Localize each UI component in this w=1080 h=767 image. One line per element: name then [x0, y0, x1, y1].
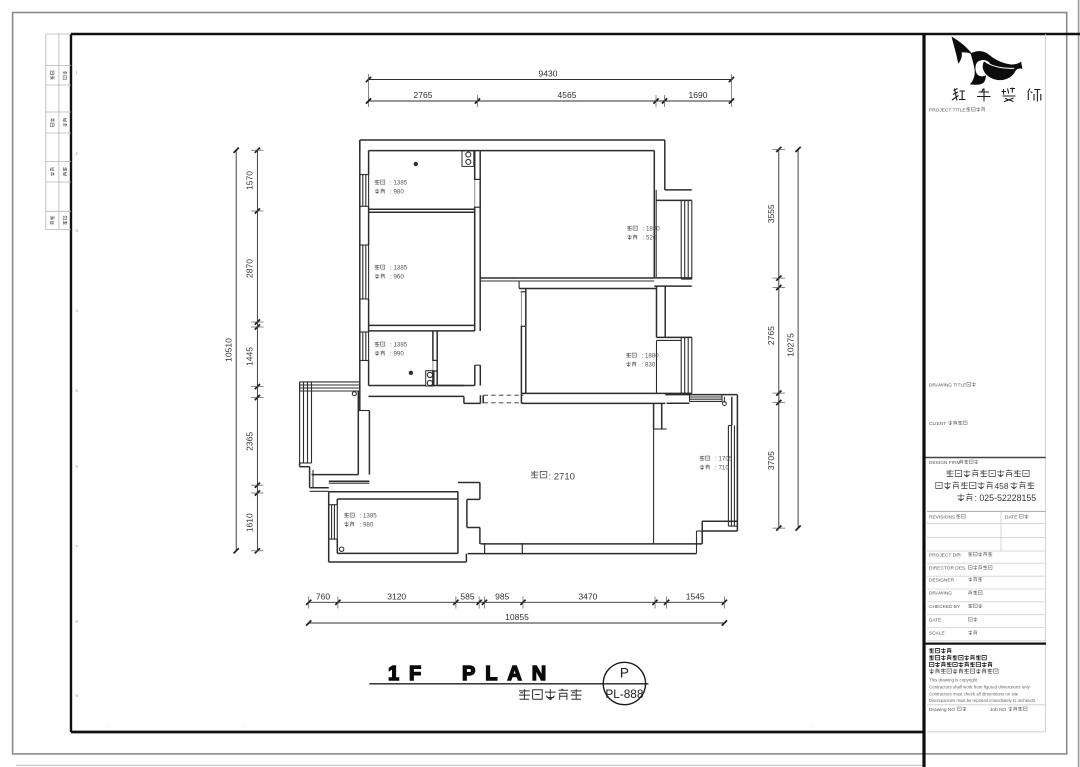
svg-text:: 1385: : 1385	[360, 512, 378, 519]
svg-text:·: ·	[519, 724, 520, 729]
svg-text:: 2710: : 2710	[549, 472, 575, 483]
svg-text:DIRECTOR DES.: DIRECTOR DES.	[929, 566, 967, 572]
svg-text:: 980: : 980	[360, 521, 374, 528]
svg-text:10855: 10855	[505, 612, 529, 622]
svg-text:DRAWING TITLE: DRAWING TITLE	[929, 383, 966, 389]
svg-text:·: ·	[107, 724, 108, 729]
svg-text:: 960: : 960	[390, 273, 404, 280]
svg-text:P: P	[620, 666, 629, 681]
svg-text:10275: 10275	[785, 333, 795, 357]
svg-text:PL-888: PL-888	[605, 687, 643, 701]
svg-text:585: 585	[460, 591, 474, 601]
svg-text:458: 458	[995, 481, 1009, 491]
svg-text:: 1385: : 1385	[390, 179, 408, 186]
svg-text:: 1705: : 1705	[715, 455, 733, 462]
svg-text:1570: 1570	[245, 171, 255, 190]
svg-text:DESIGNER: DESIGNER	[929, 577, 955, 583]
svg-text:CHECKED BY: CHECKED BY	[929, 604, 961, 610]
svg-text:·: ·	[175, 724, 176, 729]
svg-text:: 1385: : 1385	[390, 341, 408, 348]
svg-text:4565: 4565	[558, 90, 577, 100]
svg-text:2870: 2870	[245, 259, 255, 278]
svg-text:Drawing NO: Drawing NO	[929, 707, 955, 713]
svg-text:9430: 9430	[539, 69, 558, 79]
svg-text:985: 985	[495, 591, 509, 601]
svg-text:Job NO: Job NO	[990, 707, 1007, 713]
svg-text:1545: 1545	[686, 591, 705, 601]
svg-text:1610: 1610	[245, 513, 255, 532]
svg-text:Discrepancies must be reported: Discrepancies must be reported immediate…	[929, 698, 1035, 703]
svg-text:PROJECT D/R: PROJECT D/R	[929, 552, 961, 558]
svg-text:CLIENT: CLIENT	[929, 421, 946, 427]
svg-text:3470: 3470	[578, 591, 597, 601]
svg-text:: 025-52228155: : 025-52228155	[975, 493, 1037, 503]
svg-text:DATE: DATE	[929, 617, 941, 623]
svg-text:: 830: : 830	[642, 361, 656, 368]
svg-text:3120: 3120	[387, 591, 406, 601]
svg-text:·: ·	[917, 464, 918, 469]
svg-text:2765: 2765	[414, 90, 433, 100]
svg-text:: 990: : 990	[390, 350, 404, 357]
svg-text:This drawing is copyright: This drawing is copyright	[929, 678, 978, 683]
svg-text:: 1385: : 1385	[390, 264, 408, 271]
svg-text:1F PLAN: 1F PLAN	[388, 663, 556, 685]
svg-text:2365: 2365	[245, 432, 255, 451]
svg-text:: 1880: : 1880	[643, 225, 661, 232]
svg-text:760: 760	[316, 591, 330, 601]
svg-text:: 520: : 520	[643, 234, 657, 241]
svg-text:10510: 10510	[224, 338, 234, 362]
svg-text:: 980: : 980	[390, 188, 404, 195]
svg-text:Contractors must check all dim: Contractors must check all dimensions on…	[929, 692, 1019, 697]
svg-text:3705: 3705	[766, 451, 776, 470]
svg-text:·: ·	[811, 724, 812, 729]
svg-text:·: ·	[917, 619, 918, 624]
svg-text:·: ·	[243, 724, 244, 729]
svg-text:DATE: DATE	[1005, 515, 1017, 521]
svg-text:1445: 1445	[245, 347, 255, 366]
svg-text:PROJECT TITLE: PROJECT TITLE	[929, 108, 966, 114]
svg-text:DRAWING: DRAWING	[929, 591, 952, 597]
svg-text:3555: 3555	[766, 204, 776, 223]
svg-text:: 710: : 710	[715, 464, 729, 471]
svg-text:Contractors shall work from fi: Contractors shall work from figured dime…	[929, 684, 1031, 689]
svg-text:SCALE: SCALE	[929, 631, 945, 637]
svg-text:2765: 2765	[766, 326, 776, 345]
svg-text:1690: 1690	[689, 90, 708, 100]
svg-text:DESIGN FIRM: DESIGN FIRM	[929, 460, 960, 466]
svg-text:: 1880: : 1880	[642, 352, 660, 359]
svg-text:·: ·	[917, 384, 918, 389]
svg-text:REVISIONS: REVISIONS	[929, 515, 955, 521]
